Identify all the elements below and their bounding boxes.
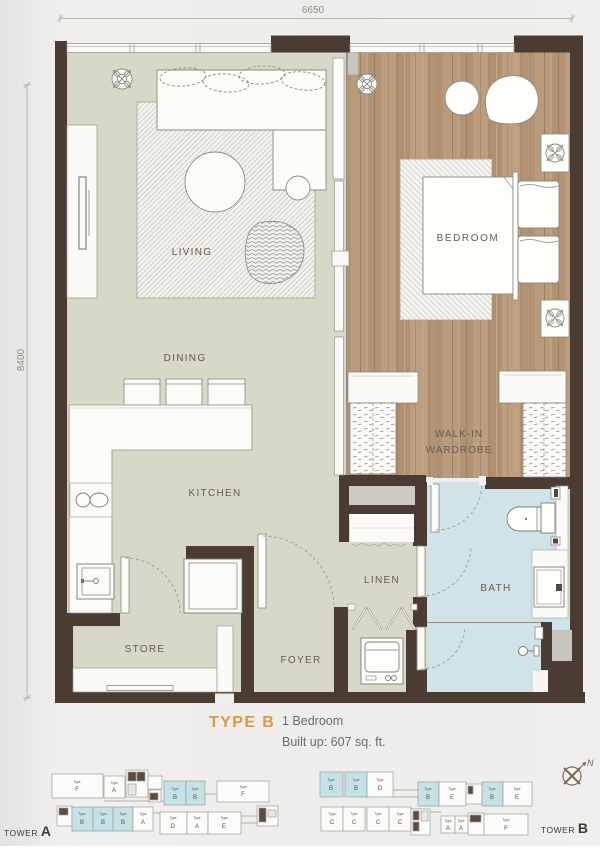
svg-text:Type: Type xyxy=(502,818,509,822)
svg-text:Type: Type xyxy=(119,812,126,816)
svg-text:E: E xyxy=(222,824,226,830)
svg-text:F: F xyxy=(504,826,508,832)
svg-text:A: A xyxy=(141,820,145,826)
svg-text:B: B xyxy=(193,795,197,801)
svg-text:Type: Type xyxy=(327,778,334,782)
svg-text:Type: Type xyxy=(171,787,178,791)
svg-text:WALK-IN: WALK-IN xyxy=(435,429,483,440)
svg-text:6650: 6650 xyxy=(302,5,325,16)
svg-text:Type: Type xyxy=(488,787,495,791)
svg-text:D: D xyxy=(171,824,176,830)
svg-text:B: B xyxy=(101,820,105,826)
svg-text:Type: Type xyxy=(193,816,200,820)
svg-text:B: B xyxy=(173,795,177,801)
svg-text:E: E xyxy=(515,795,519,801)
svg-text:C: C xyxy=(376,820,381,826)
svg-text:KITCHEN: KITCHEN xyxy=(189,488,242,499)
svg-text:DINING: DINING xyxy=(164,353,207,364)
svg-text:LIVING: LIVING xyxy=(172,247,213,258)
svg-text:D: D xyxy=(378,786,383,792)
svg-text:Type: Type xyxy=(139,812,146,816)
svg-text:N: N xyxy=(587,758,594,768)
svg-text:Type: Type xyxy=(424,787,431,791)
svg-text:A: A xyxy=(195,824,199,830)
svg-text:F: F xyxy=(75,787,79,793)
svg-text:C: C xyxy=(398,820,403,826)
svg-text:STORE: STORE xyxy=(125,644,166,655)
svg-text:Type: Type xyxy=(73,780,80,784)
svg-text:Type: Type xyxy=(374,812,381,816)
svg-text:B: B xyxy=(426,795,430,801)
svg-text:TOWER B: TOWER B xyxy=(541,820,588,836)
svg-text:Built up: 607 sq. ft.: Built up: 607 sq. ft. xyxy=(282,735,386,749)
svg-text:B: B xyxy=(80,820,84,826)
svg-text:Type: Type xyxy=(239,785,246,789)
svg-text:Type: Type xyxy=(444,819,451,823)
svg-text:A: A xyxy=(446,826,450,832)
svg-text:Type: Type xyxy=(457,819,464,823)
svg-text:LINEN: LINEN xyxy=(364,575,400,586)
svg-text:Type: Type xyxy=(513,787,520,791)
svg-text:B: B xyxy=(354,786,358,792)
svg-text:FOYER: FOYER xyxy=(281,655,322,666)
svg-text:BATH: BATH xyxy=(480,583,511,594)
svg-text:BEDROOM: BEDROOM xyxy=(437,233,500,244)
svg-text:Type: Type xyxy=(220,816,227,820)
svg-text:F: F xyxy=(241,792,245,798)
svg-text:B: B xyxy=(121,820,125,826)
svg-text:E: E xyxy=(450,795,454,801)
svg-text:TOWER A: TOWER A xyxy=(4,823,51,839)
svg-text:C: C xyxy=(352,820,357,826)
svg-text:Type: Type xyxy=(99,812,106,816)
svg-text:C: C xyxy=(330,820,335,826)
svg-text:Type: Type xyxy=(376,778,383,782)
svg-text:Type: Type xyxy=(448,787,455,791)
svg-text:Type: Type xyxy=(350,812,357,816)
svg-text:8400: 8400 xyxy=(16,348,27,371)
svg-text:B: B xyxy=(490,795,494,801)
svg-text:A: A xyxy=(459,826,463,832)
svg-text:Type: Type xyxy=(396,812,403,816)
svg-text:B: B xyxy=(329,786,333,792)
svg-text:Type: Type xyxy=(352,778,359,782)
svg-text:Type: Type xyxy=(328,812,335,816)
svg-text:Type: Type xyxy=(110,781,117,785)
svg-text:A: A xyxy=(112,788,116,794)
svg-text:TYPE B: TYPE B xyxy=(209,714,275,731)
svg-text:WARDROBE: WARDROBE xyxy=(426,445,493,456)
svg-text:1 Bedroom: 1 Bedroom xyxy=(282,714,343,728)
svg-text:Type: Type xyxy=(191,787,198,791)
svg-text:Type: Type xyxy=(78,812,85,816)
svg-text:Type: Type xyxy=(169,816,176,820)
